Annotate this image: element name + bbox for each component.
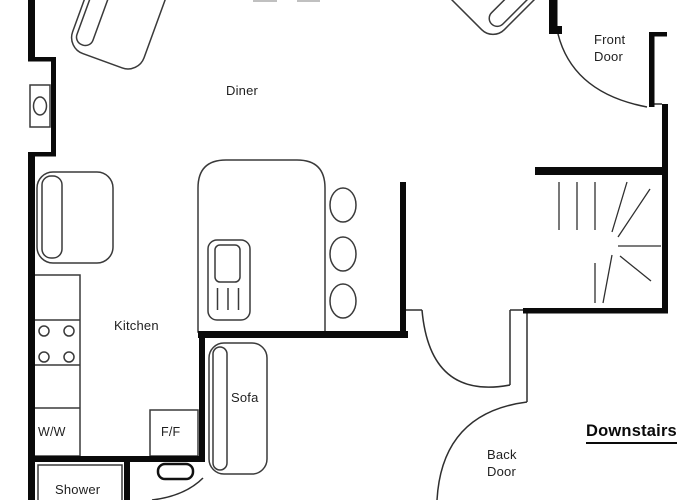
sofa-label: Sofa [231, 389, 259, 406]
stools [330, 188, 356, 318]
shower-label: Shower [55, 481, 100, 498]
shower-door-arc [152, 478, 203, 500]
armchair-tilted [67, 0, 175, 74]
wall-left-upper [28, 0, 35, 61]
front-door-label: Front Door [594, 31, 640, 65]
wall-kitchen-bottom [30, 456, 205, 462]
wall-front-door-jamb [549, 0, 558, 28]
sink-unit [208, 240, 250, 320]
page-title: Downstairs [586, 422, 677, 444]
wall-front-door-jamb-foot [549, 26, 562, 34]
basin [158, 464, 193, 479]
washing-machine-label: W/W [38, 424, 66, 441]
sofa-shape [209, 343, 267, 474]
kitchen-label: Kitchen [114, 317, 159, 334]
wall-stairs-bottom [523, 308, 668, 314]
furniture-layer [30, 0, 551, 500]
wall-right-cap [649, 32, 667, 37]
hall-door-arc [422, 310, 510, 387]
stool-3 [330, 284, 356, 318]
wall-kitchen-south [198, 331, 408, 338]
fridge-freezer-label: F/F [161, 424, 180, 441]
armchair-diamond [435, 0, 551, 41]
wall-door-jamb-right [649, 36, 655, 107]
diner-label: Diner [226, 82, 258, 99]
stairs [559, 182, 661, 303]
wall-shower-right [124, 462, 130, 500]
wall-right [662, 104, 668, 313]
wall-kitchen-east [199, 335, 205, 462]
meter-box [30, 85, 50, 127]
wall-bay-inner [51, 57, 56, 156]
wall-left-lower [28, 152, 35, 500]
wall-lounge-divider [400, 182, 406, 338]
stool-2 [330, 237, 356, 271]
stool-1 [330, 188, 356, 222]
armchair-kitchen [37, 172, 113, 263]
back-door-label: Back Door [487, 446, 529, 480]
floor-plan: Diner Front Door Kitchen W/W F/F Sofa Sh… [0, 0, 700, 500]
wall-stairs-top [535, 167, 668, 175]
